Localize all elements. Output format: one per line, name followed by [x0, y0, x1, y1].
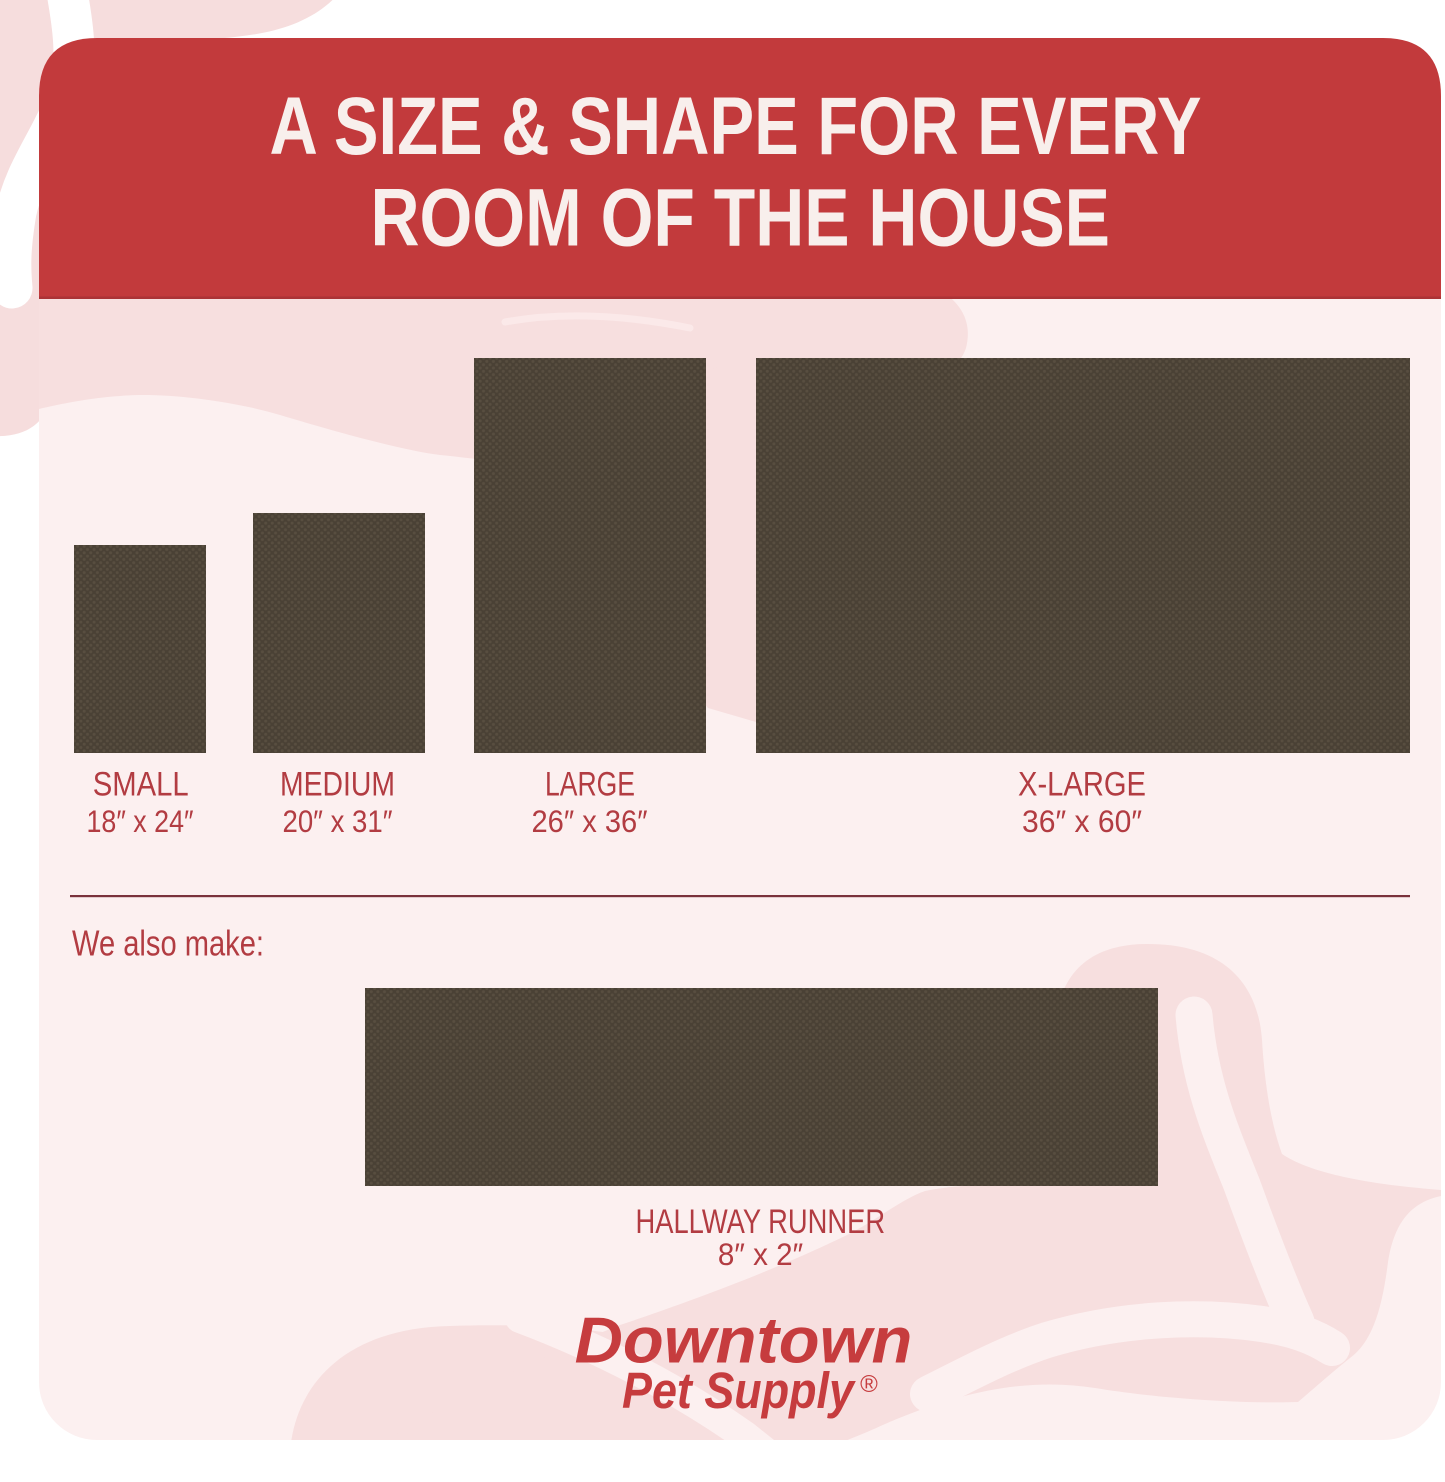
- svg-text:SMALL: SMALL: [93, 766, 189, 804]
- svg-text:X-LARGE: X-LARGE: [1018, 766, 1146, 804]
- svg-text:LARGE: LARGE: [545, 766, 635, 804]
- svg-text:36″ x 60″: 36″ x 60″: [1022, 803, 1142, 839]
- svg-text:Pet Supply: Pet Supply: [622, 1362, 856, 1419]
- svg-text:A SIZE & SHAPE FOR EVERY: A SIZE & SHAPE FOR EVERY: [270, 81, 1202, 172]
- svg-text:26″ x 36″: 26″ x 36″: [532, 803, 648, 839]
- svg-text:We also make:: We also make:: [72, 923, 264, 964]
- svg-text:ROOM OF THE HOUSE: ROOM OF THE HOUSE: [370, 173, 1110, 264]
- svg-text:®: ®: [860, 1371, 878, 1398]
- svg-text:MEDIUM: MEDIUM: [280, 766, 395, 804]
- svg-text:8″ x 2″: 8″ x 2″: [718, 1236, 803, 1272]
- svg-text:20″ x 31″: 20″ x 31″: [283, 803, 393, 839]
- svg-text:18″ x 24″: 18″ x 24″: [87, 803, 194, 839]
